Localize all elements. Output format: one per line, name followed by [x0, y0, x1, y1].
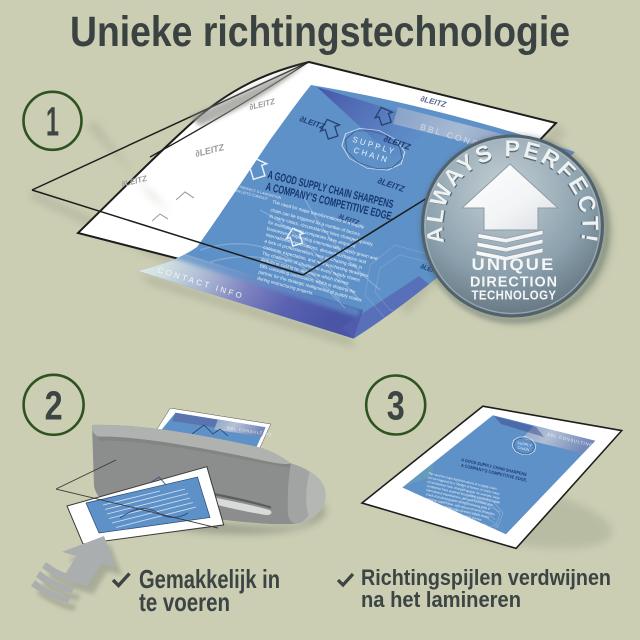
svg-text:te voeren: te voeren — [139, 587, 230, 617]
svg-text:1: 1 — [46, 99, 59, 145]
svg-text:UNIQUE: UNIQUE — [472, 256, 556, 274]
svg-text:TECHNOLOGY: TECHNOLOGY — [472, 289, 557, 303]
svg-text:3: 3 — [387, 383, 405, 429]
svg-text:2: 2 — [45, 383, 63, 429]
svg-text:na het lamineren: na het lamineren — [361, 587, 521, 612]
svg-text:Unieke richtingstechnologie: Unieke richtingstechnologie — [70, 8, 570, 56]
